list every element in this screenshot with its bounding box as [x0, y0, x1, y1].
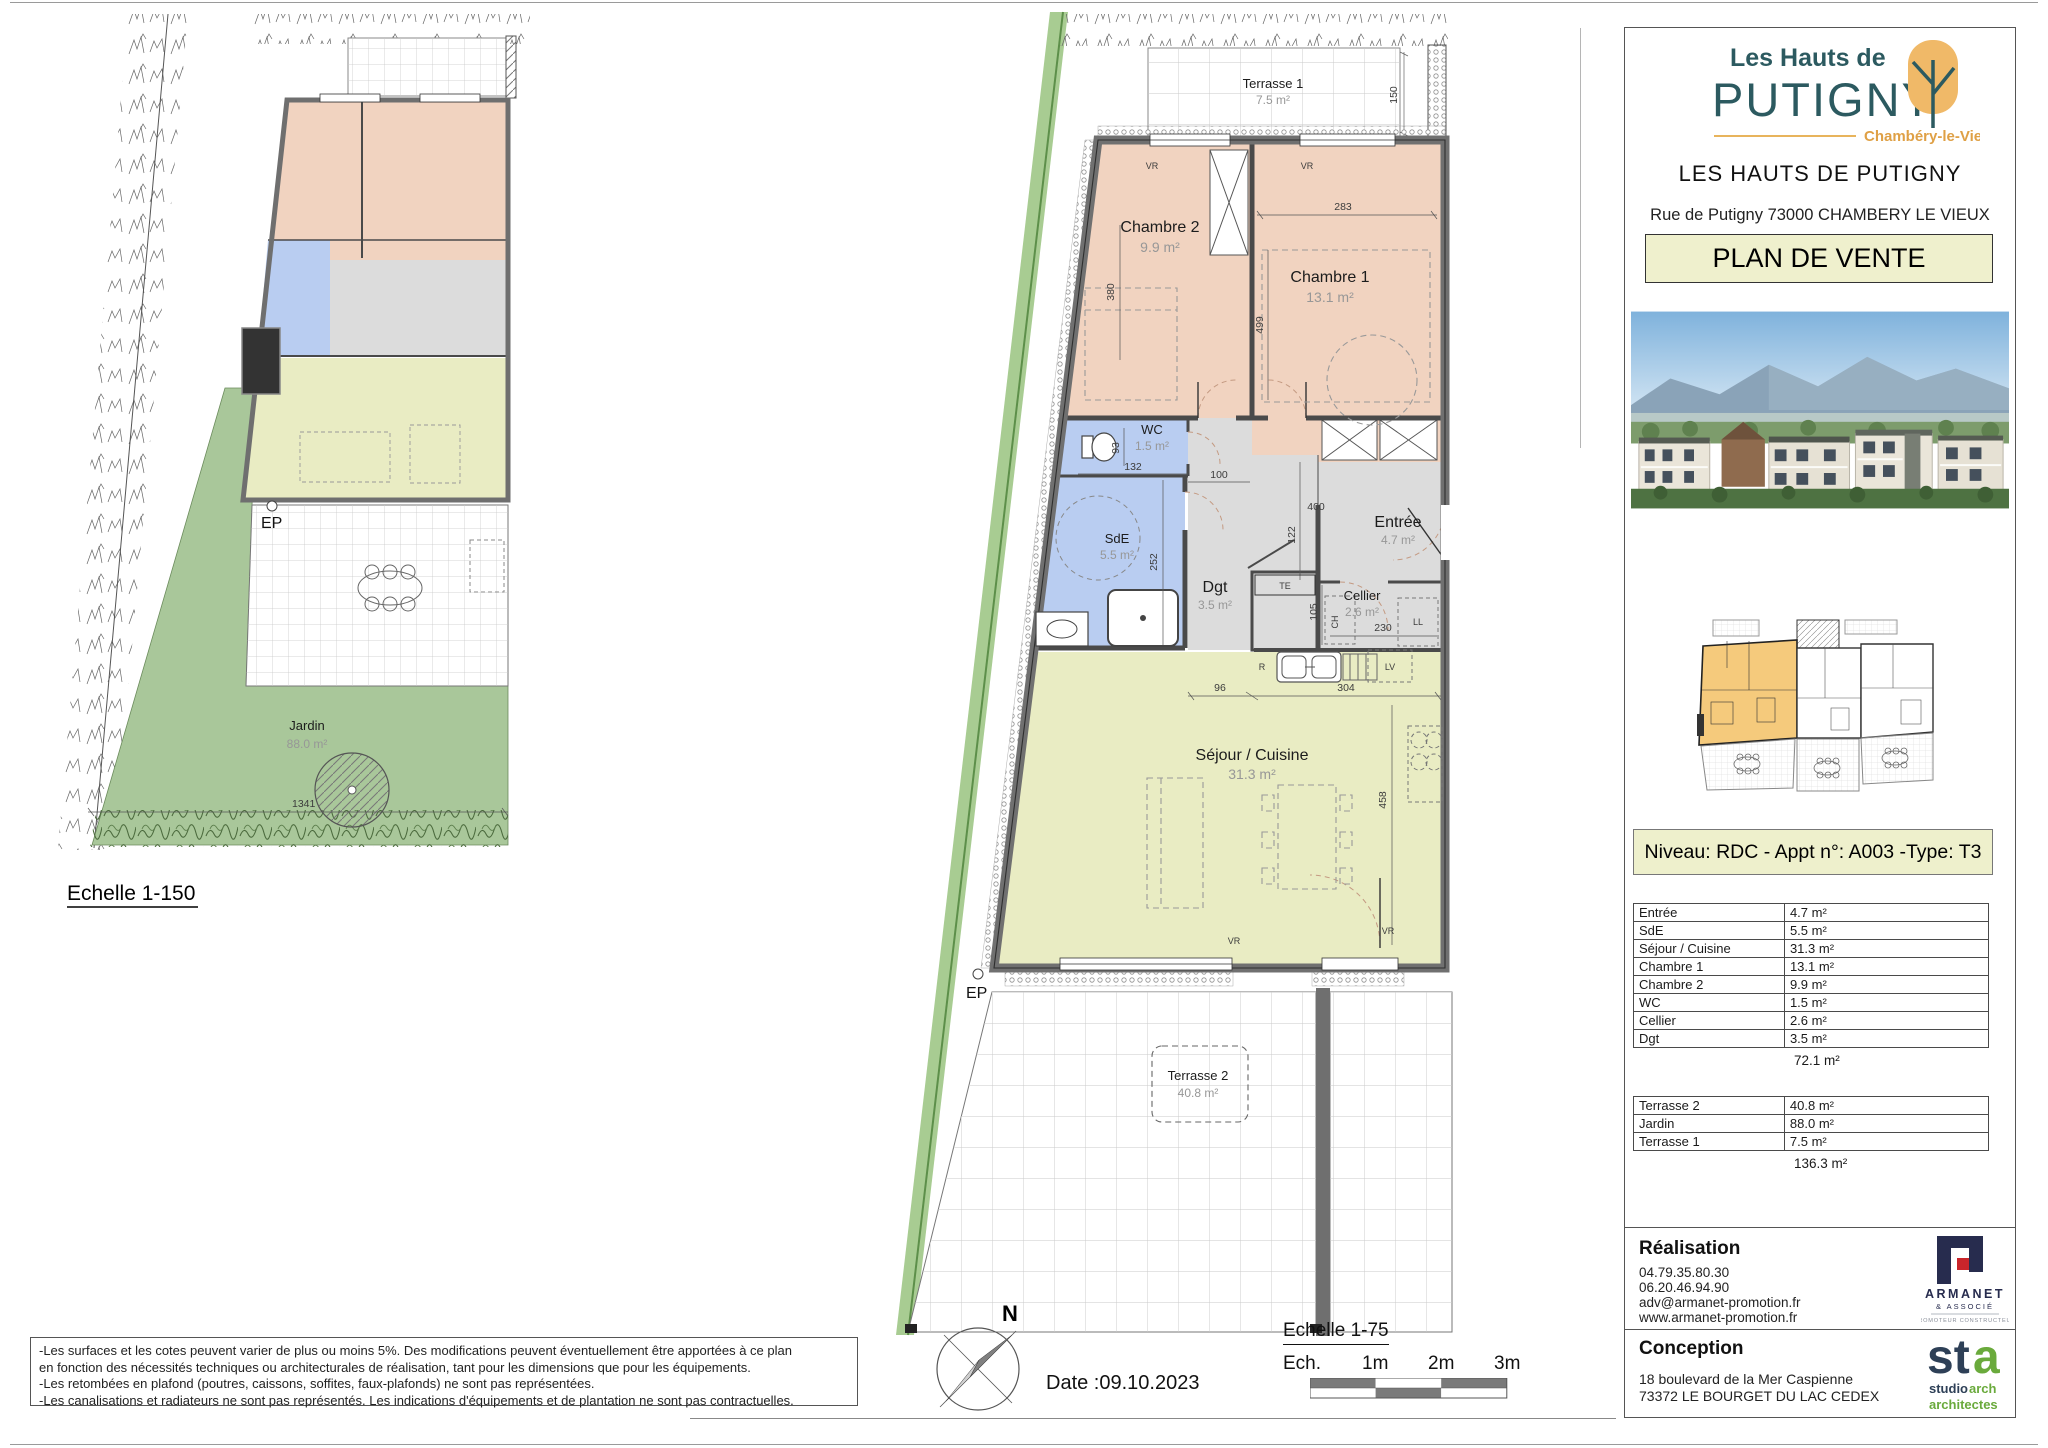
entree-area: 4.7 m² — [1381, 533, 1415, 547]
footer-separator — [690, 1418, 1616, 1419]
table-row: Chambre 113.1 m² — [1634, 958, 1989, 976]
scale-bar — [1310, 1378, 1508, 1400]
compass: N — [900, 1305, 1060, 1417]
row-value: 2.6 m² — [1784, 1012, 1988, 1030]
realisation-website: www.armanet-promotion.fr — [1639, 1311, 1797, 1326]
dgt-name: Dgt — [1203, 579, 1228, 596]
table-row: SdE5.5 m² — [1634, 922, 1989, 940]
areas-table: Entrée4.7 m² SdE5.5 m² Séjour / Cuisine3… — [1633, 903, 1989, 1048]
table-row: Terrasse 240.8 m² — [1634, 1097, 1989, 1115]
scale-label-2m: 2m — [1428, 1353, 1454, 1375]
project-address: Rue de Putigny 73000 CHAMBERY LE VIEUX — [1625, 206, 2015, 225]
row-value: 88.0 m² — [1784, 1115, 1988, 1133]
tag-vr-1: VR — [1146, 161, 1159, 171]
info-panel: Les Hauts de PUTIGNY Chambéry-le-Vieux L… — [1624, 27, 2016, 1418]
conception-address-1: 18 boulevard de la Mer Caspienne — [1639, 1372, 1853, 1387]
entree-name: Entrée — [1374, 514, 1421, 531]
disclaimer-line-2: en fonction des nécessités techniques ou… — [39, 1360, 849, 1377]
sta-mark-a: a — [1973, 1331, 2000, 1384]
row-label: Séjour / Cuisine — [1634, 940, 1785, 958]
dim-304: 304 — [1337, 682, 1355, 694]
realisation-phone-2: 06.20.46.94.90 — [1639, 1281, 1729, 1296]
table-row: Cellier2.6 m² — [1634, 1012, 1989, 1030]
page-bottom-edge — [10, 1444, 2038, 1445]
jardin-name: Jardin — [289, 718, 324, 733]
chambre1-area: 13.1 m² — [1306, 289, 1354, 305]
mini-apartment — [242, 94, 508, 500]
chambre2-area: 9.9 m² — [1140, 239, 1180, 255]
scale-label-3m: 3m — [1494, 1353, 1520, 1375]
mini-terrasse1 — [348, 36, 516, 98]
row-label: WC — [1634, 994, 1785, 1012]
armanet-tagline: PROMOTEUR CONSTRUCTEUR — [1921, 1318, 2009, 1324]
armanet-logo: ARMANET & ASSOCIÉ PROMOTEUR CONSTRUCTEUR — [1921, 1234, 2009, 1326]
row-value: 1.5 m² — [1784, 994, 1988, 1012]
row-value: 13.1 m² — [1784, 958, 1988, 976]
table-row: WC1.5 m² — [1634, 994, 1989, 1012]
jardin-area-label: 88.0 m² — [287, 737, 328, 751]
putigny-logo: Les Hauts de PUTIGNY Chambéry-le-Vieux — [1670, 36, 1980, 154]
sejour-area: 31.3 m² — [1228, 766, 1276, 782]
ep-label-left: EP — [261, 515, 282, 532]
row-label: Entrée — [1634, 904, 1785, 922]
dim-100: 100 — [1210, 469, 1228, 481]
disclaimer-line-3: -Les retombées en plafond (poutres, cais… — [39, 1376, 849, 1393]
row-value: 3.5 m² — [1784, 1030, 1988, 1048]
disclaimer-line-1: -Les surfaces et les cotes peuvent varie… — [39, 1343, 849, 1360]
dim-105: 105 — [1308, 603, 1320, 621]
ep-marker-main: EP — [966, 969, 987, 1002]
dim-150: 150 — [1388, 86, 1400, 104]
cellier-name: Cellier — [1344, 588, 1382, 603]
sejour-name: Séjour / Cuisine — [1196, 747, 1309, 764]
row-value: 4.7 m² — [1784, 904, 1988, 922]
chambre2-name: Chambre 2 — [1120, 219, 1199, 236]
dim-252: 252 — [1148, 553, 1160, 571]
sta-mark-st: st — [1927, 1331, 1970, 1384]
logo-line1: Les Hauts de — [1730, 44, 1886, 72]
scale-label-1m: 1m — [1362, 1353, 1388, 1375]
row-value: 7.5 m² — [1784, 1133, 1988, 1151]
unit-header-box: Niveau: RDC - Appt n°: A003 -Type: T3 — [1633, 829, 1993, 875]
row-label: Cellier — [1634, 1012, 1785, 1030]
scale-label-ech: Ech. — [1283, 1353, 1321, 1375]
ep-label-main: EP — [966, 985, 987, 1002]
scale-caption-150: Echelle 1-150 — [67, 882, 195, 905]
terrasse2-area-label: 40.8 m² — [1178, 1086, 1219, 1100]
row-value: 9.9 m² — [1784, 976, 1988, 994]
project-name: LES HAUTS DE PUTIGNY — [1625, 161, 2015, 187]
armanet-sub: & ASSOCIÉ — [1936, 1302, 1994, 1311]
dim-400: 400 — [1307, 501, 1325, 513]
sta-line1a: studio — [1929, 1381, 1968, 1396]
outdoor-table: Terrasse 240.8 m² Jardin88.0 m² Terrasse… — [1633, 1096, 1989, 1151]
row-label: SdE — [1634, 922, 1785, 940]
tag-vr-4: VR — [1382, 926, 1395, 936]
site-plan-1-150: EP 1341 Jardin 88.0 m² Echelle 1-150 — [30, 0, 530, 915]
row-value: 40.8 m² — [1784, 1097, 1988, 1115]
conception-address-2: 73372 LE BOURGET DU LAC CEDEX — [1639, 1389, 1879, 1404]
sta-line2: architectes — [1929, 1397, 1998, 1412]
site-right-edge — [1580, 28, 1581, 448]
dim-132: 132 — [1124, 461, 1142, 473]
table-row: Jardin88.0 m² — [1634, 1115, 1989, 1133]
table-row: Séjour / Cuisine31.3 m² — [1634, 940, 1989, 958]
terrasse1-area: 150 Terrasse 1 7.5 m² — [1148, 45, 1446, 140]
dim-96: 96 — [1214, 682, 1226, 694]
terrasse2-name: Terrasse 2 — [1168, 1068, 1229, 1083]
doc-title-box: PLAN DE VENTE — [1645, 234, 1993, 283]
dim-380: 380 — [1105, 283, 1117, 301]
dim-1341-label: 1341 — [292, 798, 316, 810]
sde-name: SdE — [1105, 531, 1130, 546]
tag-te: TE — [1279, 581, 1291, 591]
terrasse1-area-label: 7.5 m² — [1256, 93, 1290, 107]
row-label: Terrasse 2 — [1634, 1097, 1785, 1115]
tag-ll: LL — [1413, 617, 1423, 627]
cellier-area: 2.6 m² — [1345, 605, 1379, 619]
row-label: Chambre 2 — [1634, 976, 1785, 994]
dim-499: 499 — [1254, 316, 1266, 334]
apartment-plan-1-75: 150 Terrasse 1 7.5 m² Terrasse 2 40.8 m² — [690, 0, 1490, 1345]
mini-terrasse2 — [246, 505, 508, 686]
room-fills — [995, 144, 1441, 964]
terrasse2-area: Terrasse 2 40.8 m² — [905, 988, 1452, 1336]
armanet-name: ARMANET — [1925, 1287, 2005, 1301]
row-value: 31.3 m² — [1784, 940, 1988, 958]
tag-lv: LV — [1385, 662, 1395, 672]
compass-north-label: N — [1002, 1305, 1018, 1326]
sde-area: 5.5 m² — [1100, 548, 1134, 562]
dim-93: 93 — [1110, 442, 1122, 454]
tag-r: R — [1259, 662, 1266, 672]
disclaimer-box: -Les surfaces et les cotes peuvent varie… — [30, 1337, 858, 1406]
areas-total: 72.1 m² — [1789, 1053, 1994, 1068]
dim-283: 283 — [1334, 201, 1352, 213]
logo-line3: Chambéry-le-Vieux — [1864, 128, 1980, 145]
row-label: Chambre 1 — [1634, 958, 1785, 976]
disclaimer-line-4: -Les canalisations et radiateurs ne sont… — [39, 1393, 849, 1410]
scale-title-75: Echelle 1-75 — [1283, 1320, 1389, 1345]
table-row: Dgt3.5 m² — [1634, 1030, 1989, 1048]
realisation-phone-1: 04.79.35.80.30 — [1639, 1266, 1729, 1281]
dim-230: 230 — [1374, 622, 1392, 634]
tag-vr-2: VR — [1301, 161, 1314, 171]
logo-line2: PUTIGNY — [1712, 73, 1935, 126]
key-plan — [1697, 618, 1941, 826]
row-label: Dgt — [1634, 1030, 1785, 1048]
table-row: Entrée4.7 m² — [1634, 904, 1989, 922]
wc-name: WC — [1141, 422, 1163, 437]
terrasse1-name: Terrasse 1 — [1243, 76, 1304, 91]
table-row: Chambre 29.9 m² — [1634, 976, 1989, 994]
outdoor-total: 136.3 m² — [1789, 1156, 1994, 1171]
conception-title: Conception — [1639, 1338, 1744, 1360]
row-label: Jardin — [1634, 1115, 1785, 1133]
table-row: Terrasse 17.5 m² — [1634, 1133, 1989, 1151]
date-label: Date :09.10.2023 — [1046, 1372, 1199, 1395]
tag-vr-3: VR — [1228, 936, 1241, 946]
sta-line1b: arch — [1969, 1381, 1997, 1396]
chambre1-name: Chambre 1 — [1290, 269, 1369, 286]
dgt-area: 3.5 m² — [1198, 598, 1232, 612]
tree-symbol — [315, 753, 389, 827]
dim-122: 122 — [1286, 526, 1298, 544]
key-plan-highlighted-unit — [1699, 640, 1797, 745]
dim-458: 458 — [1377, 791, 1389, 809]
realisation-email: adv@armanet-promotion.fr — [1639, 1296, 1801, 1311]
realisation-title: Réalisation — [1639, 1238, 1740, 1260]
row-label: Terrasse 1 — [1634, 1133, 1785, 1151]
unit-header: Niveau: RDC - Appt n°: A003 -Type: T3 — [1645, 841, 1982, 864]
doc-title: PLAN DE VENTE — [1712, 243, 1925, 274]
row-value: 5.5 m² — [1784, 922, 1988, 940]
project-photo — [1631, 310, 2009, 510]
wc-area: 1.5 m² — [1135, 439, 1169, 453]
tag-ch: CH — [1330, 616, 1340, 629]
sta-logo: st a studio arch architectes — [1925, 1331, 2009, 1415]
